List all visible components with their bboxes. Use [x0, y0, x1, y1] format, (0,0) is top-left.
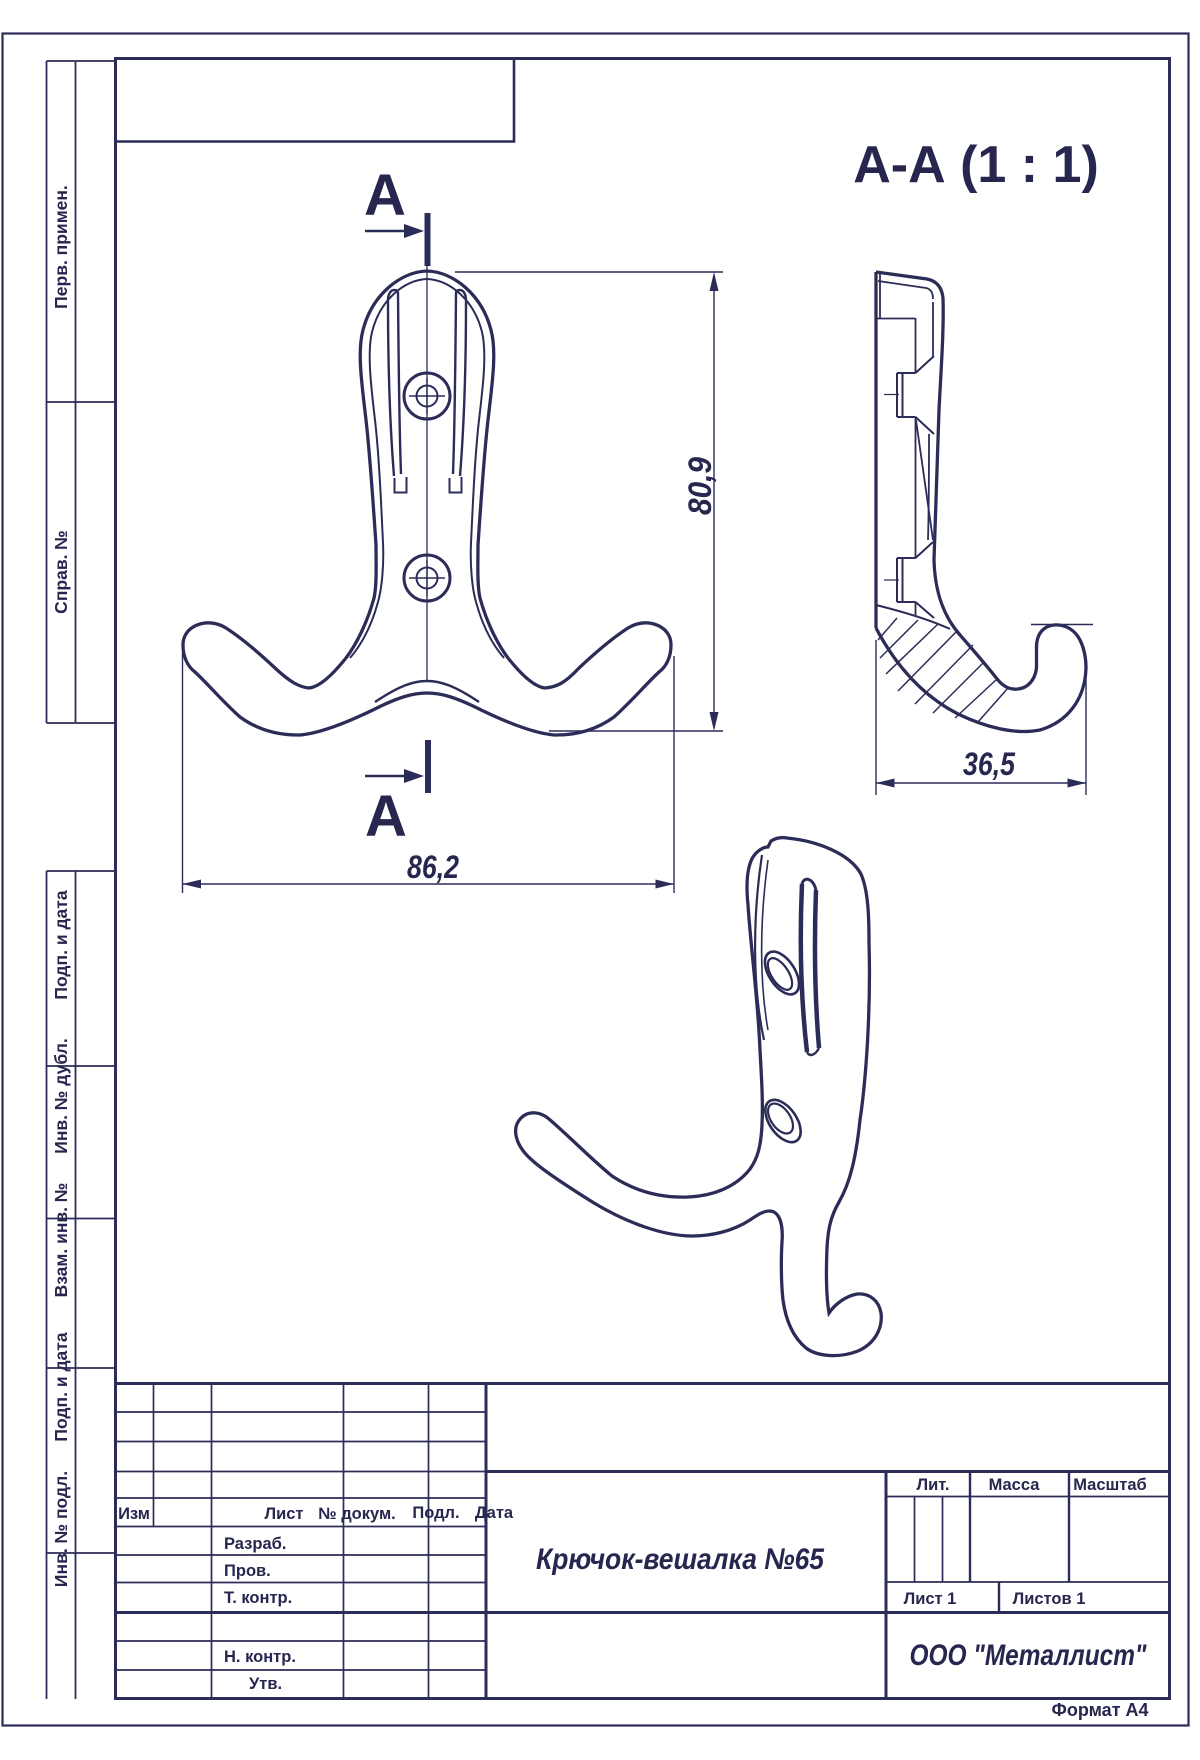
svg-text:Лист 1: Лист 1 — [904, 1590, 957, 1608]
svg-text:Т. контр.: Т. контр. — [224, 1589, 292, 1607]
svg-text:Н. контр.: Н. контр. — [224, 1648, 296, 1666]
svg-text:Подп. и дата: Подп. и дата — [51, 890, 71, 999]
svg-text:Крючок-вешалка №65: Крючок-вешалка №65 — [536, 1543, 825, 1576]
svg-text:36,5: 36,5 — [963, 746, 1016, 782]
svg-text:Изм: Изм — [118, 1505, 150, 1523]
svg-text:Листов 1: Листов 1 — [1013, 1590, 1086, 1608]
svg-text:Взам. инв. №: Взам. инв. № — [51, 1183, 71, 1298]
svg-text:Лист: Лист — [265, 1505, 304, 1523]
svg-text:Масштаб: Масштаб — [1073, 1476, 1147, 1494]
svg-text:№ докум.: № докум. — [318, 1505, 396, 1523]
svg-text:Подл.: Подл. — [412, 1504, 459, 1522]
svg-text:86,2: 86,2 — [407, 849, 459, 885]
svg-text:А: А — [364, 163, 406, 228]
svg-text:Формат А4: Формат А4 — [1051, 1700, 1148, 1720]
svg-text:Инв. № подл.: Инв. № подл. — [51, 1471, 71, 1587]
svg-text:Разраб.: Разраб. — [224, 1535, 286, 1553]
svg-text:Утв.: Утв. — [249, 1675, 282, 1693]
svg-text:Подп. и дата: Подп. и дата — [51, 1332, 71, 1441]
svg-text:А-А (1 : 1): А-А (1 : 1) — [853, 136, 1099, 194]
svg-text:Дата: Дата — [475, 1504, 514, 1522]
svg-text:Лит.: Лит. — [917, 1476, 950, 1494]
svg-text:80,9: 80,9 — [682, 457, 718, 515]
svg-text:ООО "Металлист": ООО "Металлист" — [910, 1639, 1148, 1672]
svg-text:Пров.: Пров. — [224, 1562, 271, 1580]
svg-text:Инв. № дубл.: Инв. № дубл. — [51, 1038, 71, 1153]
svg-text:Перв. примен.: Перв. примен. — [51, 185, 71, 309]
svg-text:Справ. №: Справ. № — [51, 530, 71, 614]
svg-text:Масса: Масса — [989, 1476, 1041, 1494]
svg-text:А: А — [365, 784, 407, 849]
